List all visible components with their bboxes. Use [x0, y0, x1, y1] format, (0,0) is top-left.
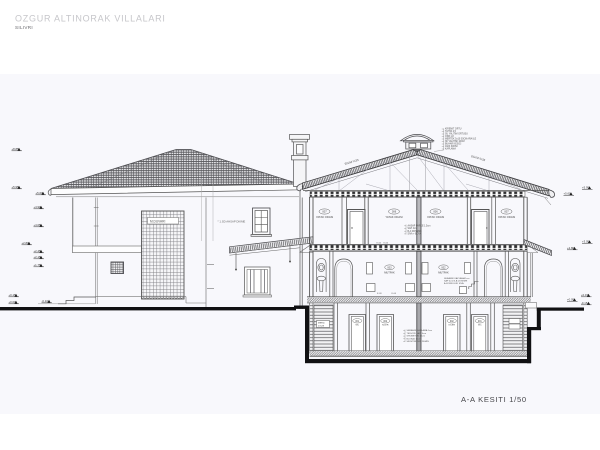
svg-text:OZGUR ALTINORAK VILLALARI: OZGUR ALTINORAK VILLALARI: [15, 14, 166, 24]
svg-text:GROBETON 10cm: GROBETON 10cm: [407, 336, 426, 338]
svg-text:YATAK ODASI: YATAK ODASI: [316, 215, 334, 219]
svg-text:SAP 4cm: SAP 4cm: [408, 227, 418, 230]
svg-text:A.KORKULUK SIVA: A.KORKULUK SIVA: [444, 282, 464, 285]
svg-text:K.04: K.04: [392, 293, 397, 295]
svg-text:KILER: KILER: [449, 324, 456, 326]
svg-text:MUTFAK: MUTFAK: [438, 270, 449, 274]
svg-text:MUTFAK: MUTFAK: [384, 270, 395, 274]
svg-text:* 1.SD AHSAP DIKME: * 1.SD AHSAP DIKME: [218, 220, 246, 224]
svg-text:-0.15: -0.15: [581, 301, 588, 305]
svg-text:M.DUVARI: M.DUVARI: [150, 219, 165, 223]
svg-text:A-A KESITI 1/50: A-A KESITI 1/50: [461, 395, 527, 404]
svg-text:SIKISTIRILMIS ZEMIN: SIKISTIRILMIS ZEMIN: [407, 341, 430, 343]
svg-text:003: 003: [387, 266, 392, 269]
svg-text:SAP 4cm B.A DOSEME: SAP 4cm B.A DOSEME: [444, 280, 468, 283]
svg-text:WC: WC: [478, 324, 482, 326]
svg-text:BLOKAJ 15cm: BLOKAJ 15cm: [407, 337, 422, 340]
svg-text:007: 007: [504, 210, 509, 214]
svg-text:YATAK ODASI: YATAK ODASI: [427, 215, 445, 219]
svg-text:007: 007: [322, 210, 327, 214]
svg-text:SERAMIK KAPLAMA 1cm: SERAMIK KAPLAMA 1cm: [444, 277, 470, 280]
svg-text:SIVA + BOYA: SIVA + BOYA: [408, 233, 422, 236]
svg-text:KILER: KILER: [382, 324, 389, 326]
svg-text:YATAK ODASI: YATAK ODASI: [385, 215, 403, 219]
svg-text:WC: WC: [355, 324, 359, 326]
svg-text:SERAMIK KAPLAMA 1cm: SERAMIK KAPLAMA 1cm: [407, 329, 433, 332]
svg-text:SILIVRI: SILIVRI: [15, 25, 33, 30]
svg-text:MERD.: MERD.: [318, 323, 325, 325]
svg-text:KAPLAMA: KAPLAMA: [445, 148, 456, 151]
svg-text:17x28: 17x28: [318, 325, 325, 327]
svg-text:006: 006: [392, 210, 397, 214]
svg-text:K.03: K.03: [377, 293, 382, 295]
svg-text:006: 006: [433, 210, 438, 214]
svg-text:002: 002: [441, 266, 446, 269]
svg-text:-0.10: -0.10: [42, 299, 49, 303]
svg-text:AHSAP PARKE 1.5cm: AHSAP PARKE 1.5cm: [408, 225, 431, 228]
svg-text:YATAK ODASI: YATAK ODASI: [498, 215, 516, 219]
svg-text:B.A DOSEME: B.A DOSEME: [408, 230, 423, 233]
svg-text:TESVIYE SAPI 4cm: TESVIYE SAPI 4cm: [407, 332, 427, 335]
